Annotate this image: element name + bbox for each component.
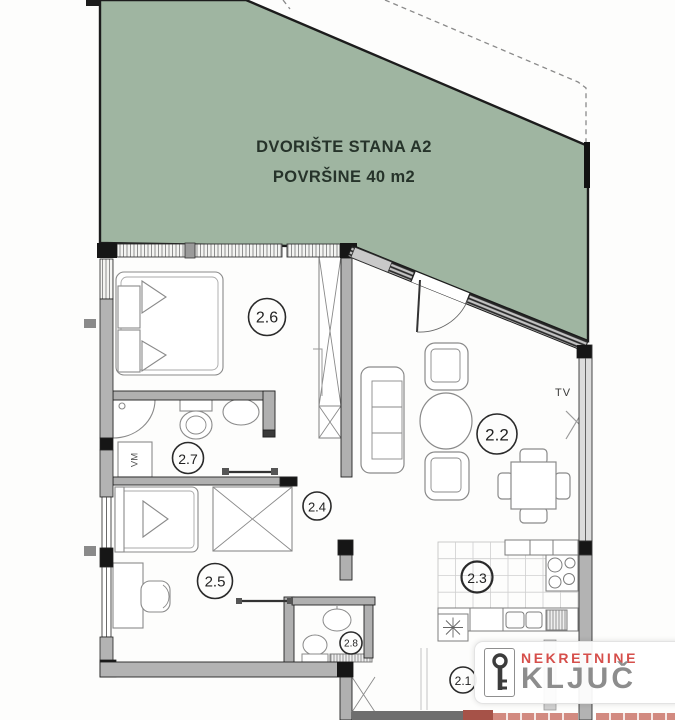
logo-text: NEKRETNINE KLJUČ <box>521 651 638 694</box>
svg-text:2.2: 2.2 <box>485 426 509 445</box>
floor-plan: DVORIŠTE STANA A2 POVRŠINE 40 m2 <box>0 0 675 720</box>
svg-text:2.4: 2.4 <box>308 500 326 515</box>
wall-bed2-bath2 <box>284 597 294 664</box>
desk-icon <box>113 563 143 628</box>
living-room-furniture <box>361 343 581 523</box>
svg-text:2.3: 2.3 <box>467 570 487 586</box>
washing-machine-label: VM <box>130 453 141 467</box>
boiler-icon <box>438 614 468 641</box>
bathroom-2-furniture <box>302 606 372 662</box>
floor-plan-canvas: DVORIŠTE STANA A2 POVRŠINE 40 m2 <box>0 0 675 720</box>
svg-text:2.1: 2.1 <box>455 674 472 688</box>
svg-text:2.5: 2.5 <box>205 574 226 591</box>
bottom-wall <box>100 662 353 677</box>
wardrobe-icon <box>213 487 292 551</box>
armchair-icon <box>425 452 469 500</box>
logo-brand-bottom: KLJUČ <box>521 665 638 694</box>
dishwasher-icon <box>546 610 567 630</box>
agency-logo: NEKRETNINE KLJUČ <box>474 641 675 704</box>
svg-text:2.7: 2.7 <box>178 451 198 467</box>
closet-hatch <box>352 677 375 712</box>
coffee-table-icon <box>420 393 472 449</box>
wall-bottom-stub <box>340 677 352 720</box>
room-label-2-7: 2.7 <box>173 443 204 474</box>
stove-icon <box>546 555 578 591</box>
courtyard-label-line2: POVRŠINE 40 m2 <box>273 167 415 186</box>
room-label-2-2: 2.2 <box>477 414 517 454</box>
double-bed-icon <box>116 272 223 375</box>
armchair-icon <box>425 343 468 390</box>
toilet-icon <box>180 399 212 439</box>
wardrobe-icon <box>319 256 341 438</box>
single-bed-icon <box>115 487 198 552</box>
top-left-boundary-cap <box>86 0 99 6</box>
dimension-ticks <box>84 319 96 556</box>
wall-living-hall <box>341 258 352 477</box>
wall-bath2-right <box>364 605 373 658</box>
dining-set-icon <box>498 449 570 523</box>
room-label-2-4: 2.4 <box>303 492 331 520</box>
bottom-red-walls <box>352 710 675 720</box>
wall-pier <box>338 540 353 555</box>
key-icon <box>484 648 515 697</box>
kitchen <box>438 540 578 641</box>
sofa-icon <box>361 367 404 473</box>
toilet-icon <box>302 635 328 662</box>
sliding-door-icon <box>222 468 278 475</box>
bedroom-2-furniture <box>113 487 292 628</box>
room-label-2-1: 2.1 <box>450 667 476 693</box>
wall-bed1-bath1 <box>113 391 275 400</box>
courtyard-label-line1: DVORIŠTE STANA A2 <box>256 137 432 156</box>
chair-icon <box>141 581 170 612</box>
sink-icon <box>323 606 351 631</box>
svg-text:2.8: 2.8 <box>344 639 358 650</box>
svg-text:2.6: 2.6 <box>256 310 278 327</box>
wall-corner <box>97 243 117 258</box>
room-label-2-8: 2.8 <box>340 632 362 654</box>
courtyard-edge-pier <box>584 142 590 188</box>
kitchen-sink-icon <box>506 612 542 628</box>
red-wall-pier <box>463 710 493 720</box>
wall-hall-bed2 <box>113 477 297 485</box>
room-label-2-3: 2.3 <box>462 562 493 593</box>
tv-label: TV <box>555 387 571 399</box>
room-label-2-6: 2.6 <box>249 299 286 336</box>
wall-bath2-top <box>292 597 375 605</box>
shower-icon <box>113 400 155 438</box>
room-label-2-5: 2.5 <box>198 564 233 599</box>
